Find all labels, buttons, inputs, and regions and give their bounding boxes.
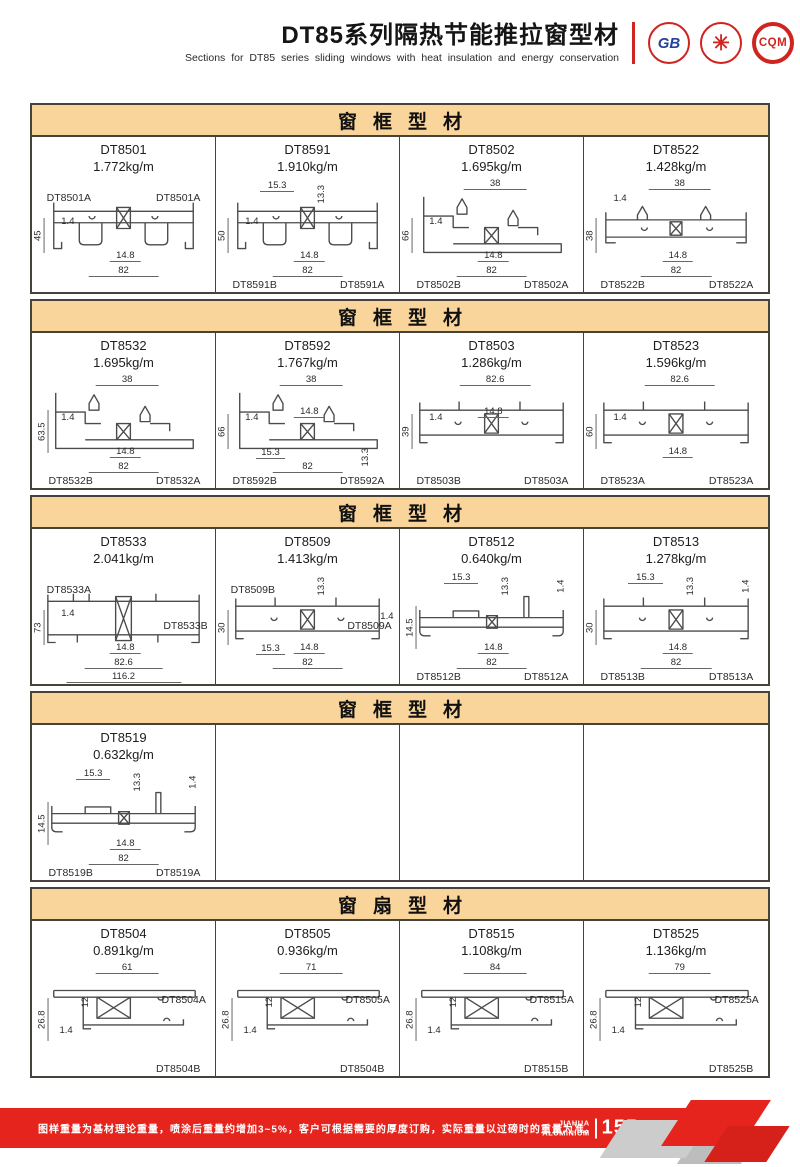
profile-drawing: 38661.414.882DT8502BDT8502A xyxy=(400,179,583,292)
profile-drawing: 82.61.414.839DT8503BDT8503A xyxy=(400,375,583,488)
dimension-label: 1.4 xyxy=(245,413,258,423)
section-header-bar: 窗扇型材 xyxy=(32,889,768,921)
dimension-label: 14.8 xyxy=(294,251,325,262)
part-label: DT8522A xyxy=(709,280,753,292)
part-label: DT8533B xyxy=(163,621,207,633)
profile-drawing xyxy=(216,767,399,880)
dimension-label: 14.5 xyxy=(406,606,417,649)
profile-drawing: 381.43814.882DT8522BDT8522A xyxy=(584,179,768,292)
dimension-label: 60 xyxy=(586,414,597,449)
section-title: 窗框型材 xyxy=(322,499,478,526)
model-weight: 1.278kg/m xyxy=(584,551,768,568)
dimension-label: 38 xyxy=(96,375,159,386)
profile-drawing: 8426.8121.4DT8515ADT8515B xyxy=(400,963,583,1076)
dimension-label: 61 xyxy=(96,963,159,974)
part-label: DT8592B xyxy=(232,476,276,488)
dimension-label: 1.4 xyxy=(427,1026,440,1036)
part-label: DT8592A xyxy=(340,476,384,488)
model-weight: 1.428kg/m xyxy=(584,159,768,176)
dimension-label: 1.4 xyxy=(189,776,199,789)
dimension-label: 13.3 xyxy=(361,448,371,467)
profile-drawing: 7126.8121.4DT8505ADT8504B xyxy=(216,963,399,1076)
profile-cell: DT8505 0.936kg/m 7126.8121.4DT8505ADT850… xyxy=(216,921,400,1076)
profile-section: 窗框型材 DT8519 0.632kg/m 15.313.31.414.514.… xyxy=(30,691,770,882)
dimension-label: 1.4 xyxy=(245,217,258,227)
section-title: 窗扇型材 xyxy=(322,891,478,918)
part-label: DT8513A xyxy=(709,672,753,684)
dimension-label: 14.8 xyxy=(110,447,141,458)
profile-cell xyxy=(584,725,768,880)
model-number: DT8504 xyxy=(32,926,215,943)
dimension-label: 1.4 xyxy=(61,413,74,423)
dimension-label: 73 xyxy=(34,610,45,645)
part-label: DT8504B xyxy=(156,1064,200,1076)
section-title: 窗框型材 xyxy=(322,303,478,330)
dimension-label: 26.8 xyxy=(590,998,601,1041)
profile-cell: DT8592 1.767kg/m 38661.414.815.38213.3DT… xyxy=(216,333,400,488)
section-header-bar: 窗框型材 xyxy=(32,693,768,725)
part-label: DT8509A xyxy=(347,621,391,633)
dimension-label: 14.8 xyxy=(110,251,141,262)
dimension-label: 14.8 xyxy=(663,251,694,262)
sections: 窗框型材 DT8501 1.772kg/m 451.414.882DT8501A… xyxy=(30,103,770,1083)
brand-line2: ALUMINIUM xyxy=(542,1128,589,1137)
profile-drawing: 15.313.3501.414.882DT8591BDT8591A xyxy=(216,179,399,292)
model-number: DT8513 xyxy=(584,534,768,551)
dimension-label: 82 xyxy=(272,266,343,277)
model-weight: 1.413kg/m xyxy=(216,551,399,568)
dimension-label: 15.3 xyxy=(444,573,479,584)
part-label: DT8591B xyxy=(232,280,276,292)
dimension-label: 12 xyxy=(449,997,459,1008)
dimension-label: 1.4 xyxy=(243,1026,256,1036)
profile-cell: DT8525 1.136kg/m 7926.8121.4DT8525ADT852… xyxy=(584,921,768,1076)
part-label: DT8504B xyxy=(340,1064,384,1076)
dimension-label: 82.6 xyxy=(84,658,163,669)
dimension-label: 38 xyxy=(280,375,343,386)
dimension-label: 84 xyxy=(464,963,527,974)
dimension-label: 14.8 xyxy=(478,407,509,418)
gb-certification-icon: GB xyxy=(648,22,690,64)
brand-name: JIAHUA ALUMINIUM xyxy=(542,1119,589,1138)
profile-drawing: 3863.51.414.882DT8532BDT8532A xyxy=(32,375,215,488)
dimension-label: 14.8 xyxy=(478,251,509,262)
dimension-label: 82 xyxy=(272,462,343,473)
dimension-label: 66 xyxy=(218,414,229,449)
model-number: DT8519 xyxy=(32,730,215,747)
title-block: DT85系列隔热节能推拉窗型材 Sections for DT85 series… xyxy=(185,22,619,64)
dimension-label: 45 xyxy=(34,218,45,253)
dimension-label: 1.4 xyxy=(429,217,442,227)
profile-drawing xyxy=(584,767,768,880)
profile-drawing: 15.313.31.414.514.882DT8519BDT8519A xyxy=(32,767,215,880)
part-label: DT8522B xyxy=(601,280,645,292)
model-weight: 1.286kg/m xyxy=(400,355,583,372)
part-label: DT8525A xyxy=(714,995,758,1007)
dimension-label: 15.3 xyxy=(260,181,295,192)
dimension-label: 14.8 xyxy=(663,447,694,458)
dimension-label: 82 xyxy=(456,658,527,669)
dimension-label: 82 xyxy=(641,658,712,669)
dimension-label: 13.3 xyxy=(686,577,696,596)
profile-cell: DT8509 1.413kg/m 13.3301.415.314.882DT85… xyxy=(216,529,400,684)
part-label: DT8523A xyxy=(709,476,753,488)
model-number: DT8501 xyxy=(32,142,215,159)
dimension-label: 14.8 xyxy=(663,643,694,654)
model-number: DT8532 xyxy=(32,338,215,355)
footer-note: 图样重量为基材理论重量，喷涂后重量约增加3~5%，客户可根据需要的厚度订购，实际… xyxy=(38,1121,596,1136)
section-title: 窗框型材 xyxy=(322,107,478,134)
cqm-logo-text: CQM xyxy=(759,37,787,49)
dimension-label: 15.3 xyxy=(256,644,285,655)
dimension-label: 82 xyxy=(88,266,159,277)
dimension-label: 14.8 xyxy=(110,643,141,654)
dimension-label: 82.6 xyxy=(644,375,715,386)
page-footer: 图样重量为基材理论重量，喷涂后重量约增加3~5%，客户可根据需要的厚度订购，实际… xyxy=(0,1100,800,1167)
model-number: DT8509 xyxy=(216,534,399,551)
dimension-label: 14.8 xyxy=(478,643,509,654)
profile-section: 窗框型材 DT8533 2.041kg/m 731.414.882.6116.2… xyxy=(30,495,770,686)
brand-line1: JIAHUA xyxy=(542,1119,589,1128)
section-title: 窗框型材 xyxy=(322,695,478,722)
dimension-label: 13.3 xyxy=(317,185,327,204)
part-label: DT8501A xyxy=(47,193,91,205)
section-header-bar: 窗框型材 xyxy=(32,105,768,137)
dimension-label: 71 xyxy=(280,963,343,974)
profile-drawing: 7926.8121.4DT8525ADT8525B xyxy=(584,963,768,1076)
part-label: DT8512A xyxy=(524,672,568,684)
part-label: DT8532A xyxy=(156,476,200,488)
profile-drawing: 451.414.882DT8501ADT8501A xyxy=(32,179,215,292)
dimension-label: 13.3 xyxy=(501,577,511,596)
dimension-label: 1.4 xyxy=(557,580,567,593)
part-label: DT8519A xyxy=(156,868,200,880)
brand-divider xyxy=(595,1118,597,1138)
profile-cell xyxy=(216,725,400,880)
profile-cross-section-icon xyxy=(408,391,575,458)
dimension-label: 79 xyxy=(648,963,711,974)
model-weight: 1.596kg/m xyxy=(584,355,768,372)
model-weight: 0.640kg/m xyxy=(400,551,583,568)
part-label: DT8502A xyxy=(524,280,568,292)
profile-cell: DT8515 1.108kg/m 8426.8121.4DT8515ADT851… xyxy=(400,921,584,1076)
part-label: DT8532B xyxy=(48,476,92,488)
dimension-label: 30 xyxy=(218,610,229,645)
dimension-label: 12 xyxy=(265,997,275,1008)
part-label: DT8519B xyxy=(48,868,92,880)
model-weight: 1.136kg/m xyxy=(584,943,768,960)
profile-drawing: 15.313.31.43014.882DT8513BDT8513A xyxy=(584,571,768,684)
dimension-label: 1.4 xyxy=(59,1026,72,1036)
model-weight: 1.767kg/m xyxy=(216,355,399,372)
section-row: DT8533 2.041kg/m 731.414.882.6116.2DT853… xyxy=(32,529,768,684)
dimension-label: 26.8 xyxy=(222,998,233,1041)
certification-logos: GB ✳ CQM xyxy=(648,22,794,64)
dimension-label: 82.6 xyxy=(460,375,531,386)
model-number: DT8515 xyxy=(400,926,583,943)
page-header: DT85系列隔热节能推拉窗型材 Sections for DT85 series… xyxy=(0,22,794,64)
profile-cell: DT8503 1.286kg/m 82.61.414.839DT8503BDT8… xyxy=(400,333,584,488)
profile-drawing: 13.3301.415.314.882DT8509BDT8509A xyxy=(216,571,399,684)
dimension-label: 66 xyxy=(402,218,413,253)
profile-cell xyxy=(400,725,584,880)
quality-star-icon: ✳ xyxy=(700,22,742,64)
profile-drawing: 15.313.31.414.514.882DT8512BDT8512A xyxy=(400,571,583,684)
profile-cell: DT8523 1.596kg/m 82.6601.414.8DT8523ADT8… xyxy=(584,333,768,488)
part-label: DT8505A xyxy=(346,995,390,1007)
dimension-label: 1.4 xyxy=(61,609,74,619)
model-number: DT8533 xyxy=(32,534,215,551)
dimension-label: 82 xyxy=(641,266,712,277)
dimension-label: 12 xyxy=(634,997,644,1008)
dimension-label: 38 xyxy=(586,218,597,253)
dimension-label: 13.3 xyxy=(317,577,327,596)
dimension-label: 82 xyxy=(456,266,527,277)
model-weight: 2.041kg/m xyxy=(32,551,215,568)
dimension-label: 50 xyxy=(218,218,229,253)
model-number: DT8522 xyxy=(584,142,768,159)
part-label: DT8501A xyxy=(156,193,200,205)
dimension-label: 14.8 xyxy=(294,407,325,418)
part-label: DT8509B xyxy=(231,585,275,597)
dimension-label: 26.8 xyxy=(406,998,417,1041)
profile-section: 窗框型材 DT8501 1.772kg/m 451.414.882DT8501A… xyxy=(30,103,770,294)
part-label: DT8513B xyxy=(601,672,645,684)
dimension-label: 82 xyxy=(88,854,159,865)
dimension-label: 38 xyxy=(464,179,527,190)
model-number: DT8525 xyxy=(584,926,768,943)
part-label: DT8503A xyxy=(524,476,568,488)
dimension-label: 30 xyxy=(586,610,597,645)
model-weight: 1.695kg/m xyxy=(400,159,583,176)
model-weight: 1.108kg/m xyxy=(400,943,583,960)
profile-cell: DT8512 0.640kg/m 15.313.31.414.514.882DT… xyxy=(400,529,584,684)
model-weight: 0.891kg/m xyxy=(32,943,215,960)
profile-cell: DT8501 1.772kg/m 451.414.882DT8501ADT850… xyxy=(32,137,216,292)
dimension-label: 14.8 xyxy=(294,643,325,654)
profile-cell: DT8502 1.695kg/m 38661.414.882DT8502BDT8… xyxy=(400,137,584,292)
dimension-label: 12 xyxy=(81,997,91,1008)
profile-cell: DT8591 1.910kg/m 15.313.3501.414.882DT85… xyxy=(216,137,400,292)
dimension-label: 63.5 xyxy=(38,410,49,453)
header-divider xyxy=(632,22,635,64)
cqm-certification-icon: CQM xyxy=(752,22,794,64)
part-label: DT8525B xyxy=(709,1064,753,1076)
part-label: DT8533A xyxy=(47,585,91,597)
dimension-label: 39 xyxy=(402,414,413,449)
part-label: DT8503B xyxy=(416,476,460,488)
part-label: DT8515A xyxy=(530,995,574,1007)
dimension-label: 1.4 xyxy=(61,217,74,227)
dimension-label: 14.8 xyxy=(110,839,141,850)
model-weight: 1.772kg/m xyxy=(32,159,215,176)
part-label: DT8502B xyxy=(416,280,460,292)
profile-drawing xyxy=(400,767,583,880)
section-header-bar: 窗框型材 xyxy=(32,497,768,529)
model-number: DT8505 xyxy=(216,926,399,943)
part-label: DT8591A xyxy=(340,280,384,292)
section-row: DT8519 0.632kg/m 15.313.31.414.514.882DT… xyxy=(32,725,768,880)
page-subtitle: Sections for DT85 series sliding windows… xyxy=(185,52,619,64)
catalog-page: DT85系列隔热节能推拉窗型材 Sections for DT85 series… xyxy=(0,0,800,1167)
dimension-label: 1.4 xyxy=(612,1026,625,1036)
dimension-label: 38 xyxy=(648,179,711,190)
part-label: DT8504A xyxy=(162,995,206,1007)
profile-cell: DT8504 0.891kg/m 6126.8121.4DT8504ADT850… xyxy=(32,921,216,1076)
section-row: DT8532 1.695kg/m 3863.51.414.882DT8532BD… xyxy=(32,333,768,488)
gb-logo-text: GB xyxy=(658,35,681,52)
profile-drawing: 6126.8121.4DT8504ADT8504B xyxy=(32,963,215,1076)
dimension-label: 82 xyxy=(88,462,159,473)
part-label: DT8515B xyxy=(524,1064,568,1076)
dimension-label: 1.4 xyxy=(613,413,626,423)
model-weight: 1.910kg/m xyxy=(216,159,399,176)
profile-drawing: 38661.414.815.38213.3DT8592BDT8592A xyxy=(216,375,399,488)
model-number: DT8591 xyxy=(216,142,399,159)
profile-section: 窗扇型材 DT8504 0.891kg/m 6126.8121.4DT8504A… xyxy=(30,887,770,1078)
model-number: DT8503 xyxy=(400,338,583,355)
dimension-label: 1.4 xyxy=(429,413,442,423)
part-label: DT8512B xyxy=(416,672,460,684)
model-number: DT8592 xyxy=(216,338,399,355)
dimension-label: 1.4 xyxy=(613,194,626,204)
model-number: DT8512 xyxy=(400,534,583,551)
profile-cell: DT8533 2.041kg/m 731.414.882.6116.2DT853… xyxy=(32,529,216,684)
dimension-label: 15.3 xyxy=(256,448,285,459)
profile-cell: DT8513 1.278kg/m 15.313.31.43014.882DT85… xyxy=(584,529,768,684)
profile-drawing: 82.6601.414.8DT8523ADT8523A xyxy=(584,375,768,488)
dimension-label: 82 xyxy=(272,658,343,669)
star-glyph: ✳ xyxy=(712,33,730,54)
model-number: DT8523 xyxy=(584,338,768,355)
page-title: DT85系列隔热节能推拉窗型材 xyxy=(185,22,619,50)
dimension-label: 15.3 xyxy=(76,769,111,780)
section-row: DT8504 0.891kg/m 6126.8121.4DT8504ADT850… xyxy=(32,921,768,1076)
profile-cell: DT8532 1.695kg/m 3863.51.414.882DT8532BD… xyxy=(32,333,216,488)
model-weight: 0.632kg/m xyxy=(32,747,215,764)
dimension-label: 116.2 xyxy=(66,672,181,683)
dimension-label: 13.3 xyxy=(133,773,143,792)
profile-cell: DT8519 0.632kg/m 15.313.31.414.514.882DT… xyxy=(32,725,216,880)
model-weight: 1.695kg/m xyxy=(32,355,215,372)
model-number: DT8502 xyxy=(400,142,583,159)
dimension-label: 1.4 xyxy=(741,580,751,593)
dimension-label: 26.8 xyxy=(38,998,49,1041)
dimension-label: 15.3 xyxy=(628,573,663,584)
profile-drawing: 731.414.882.6116.2DT8533ADT8533B xyxy=(32,571,215,684)
section-row: DT8501 1.772kg/m 451.414.882DT8501ADT850… xyxy=(32,137,768,292)
profile-section: 窗框型材 DT8532 1.695kg/m 3863.51.414.882DT8… xyxy=(30,299,770,490)
dimension-label: 14.5 xyxy=(38,802,49,845)
model-weight: 0.936kg/m xyxy=(216,943,399,960)
part-label: DT8523A xyxy=(601,476,645,488)
profile-cell: DT8522 1.428kg/m 381.43814.882DT8522BDT8… xyxy=(584,137,768,292)
section-header-bar: 窗框型材 xyxy=(32,301,768,333)
